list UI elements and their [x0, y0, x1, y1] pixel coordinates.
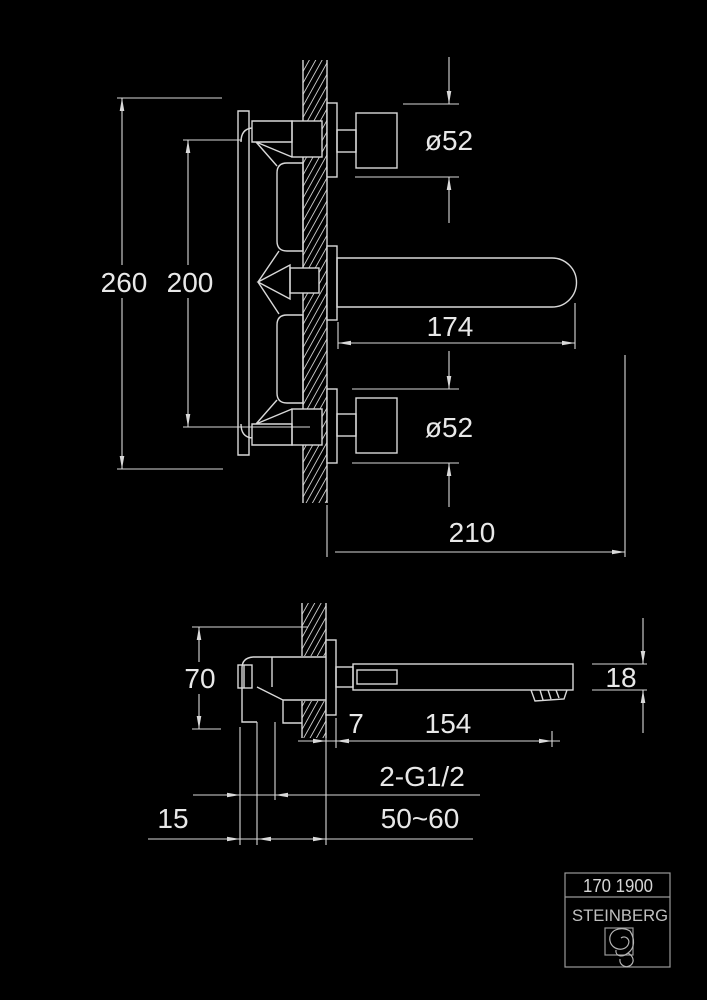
escutcheon-top: [327, 103, 337, 177]
front-view: 260 200 ø52 174 ø52 210: [101, 15, 625, 557]
handle-bottom: [337, 398, 397, 453]
dim-label-trim-depth: 7: [348, 708, 364, 739]
drawing-page: 260 200 ø52 174 ø52 210 70: [0, 0, 707, 1000]
dim-label-handle-spacing: 200: [167, 267, 214, 298]
handle-bottom-stem: [337, 414, 356, 436]
spout-body-side: [353, 664, 573, 690]
handle-top: [337, 113, 397, 168]
spout-stub-side: [336, 667, 353, 687]
dimensions-side: 70 7 154 18 2-G1/2 15 50~60: [148, 618, 647, 845]
handle-top-stem: [337, 130, 356, 152]
handle-top-knob: [356, 113, 397, 168]
dim-label-body-height: 70: [184, 663, 215, 694]
body-tube-upper: [277, 163, 303, 251]
dim-label-bottom-handle-diameter: ø52: [425, 412, 473, 443]
dim-label-inlet-offset: 15: [157, 803, 188, 834]
dim-label-wall-depth-range: 50~60: [381, 803, 460, 834]
escutcheons-front: [327, 103, 337, 463]
inlet-fitting-side: [238, 665, 252, 688]
side-view: 70 7 154 18 2-G1/2 15 50~60: [148, 558, 647, 845]
escutcheon-side: [326, 640, 336, 715]
model-number: 170 1900: [583, 876, 653, 896]
spout-front: [337, 258, 577, 307]
escutcheon-bottom: [327, 389, 337, 463]
wall-penetration: [300, 656, 327, 701]
logo-swirl: [610, 929, 634, 967]
handle-bottom-knob: [356, 398, 397, 453]
dim-label-spout-height: 18: [605, 662, 636, 693]
spout-side: [336, 664, 573, 701]
dim-label-spout-length: 174: [427, 311, 474, 342]
body-tube-lower: [277, 315, 303, 403]
aerator-outlet: [531, 690, 567, 701]
dim-label-thread: 2-G1/2: [379, 761, 465, 792]
brand-name: STEINBERG: [572, 907, 668, 925]
spout-setscrew-detail: [357, 670, 397, 684]
escutcheon-middle: [327, 246, 337, 320]
dim-label-outlet-reach: 154: [425, 708, 472, 739]
title-block: 170 1900 STEINBERG: [565, 873, 670, 967]
technical-drawing: 260 200 ø52 174 ø52 210 70: [0, 0, 707, 1000]
dim-label-projection: 210: [449, 517, 496, 548]
mounting-plate: [238, 111, 249, 455]
steinberg-script-logo-icon: [605, 928, 634, 967]
middle-valve-cone: [258, 251, 290, 314]
top-valve-wall-section: [292, 121, 322, 157]
middle-valve-wall-section: [290, 268, 319, 293]
dim-label-overall-height: 260: [101, 267, 148, 298]
dim-label-top-handle-diameter: ø52: [425, 125, 473, 156]
